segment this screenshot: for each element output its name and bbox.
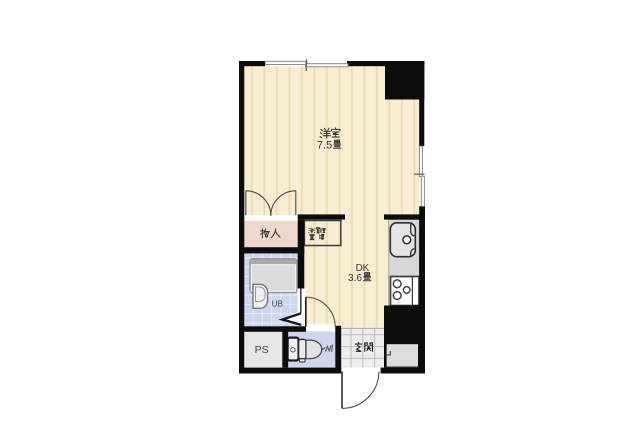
svg-text:7.5: 7.5	[317, 139, 332, 151]
svg-text:3.6: 3.6	[348, 273, 362, 284]
svg-text:UB: UB	[272, 300, 283, 309]
svg-text:PS: PS	[255, 344, 269, 356]
